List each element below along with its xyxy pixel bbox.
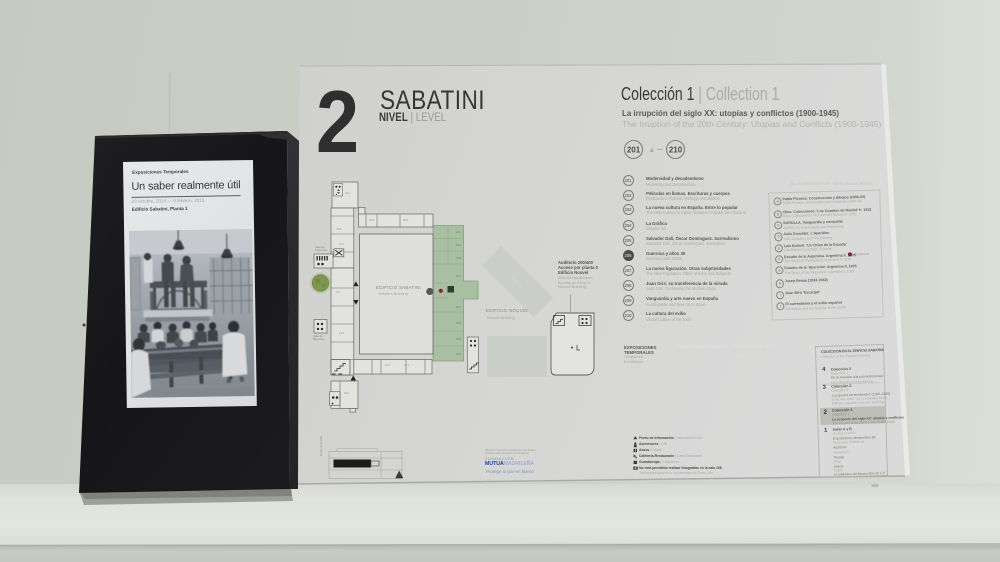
svg-text:203: 203	[456, 321, 461, 325]
svg-text:201: 201	[456, 352, 461, 356]
svg-text:208: 208	[456, 256, 461, 260]
svg-text:Ronda de Atocha: Ronda de Atocha	[319, 436, 323, 456]
svg-text:204: 204	[456, 305, 461, 309]
svg-text:a: a	[650, 148, 654, 154]
svg-text:209: 209	[456, 243, 461, 247]
svg-text:201: 201	[627, 145, 641, 154]
svg-text:210: 210	[669, 145, 683, 154]
svg-text:202: 202	[456, 337, 461, 341]
svg-text:210: 210	[456, 230, 461, 234]
svg-text:207: 207	[456, 274, 461, 278]
